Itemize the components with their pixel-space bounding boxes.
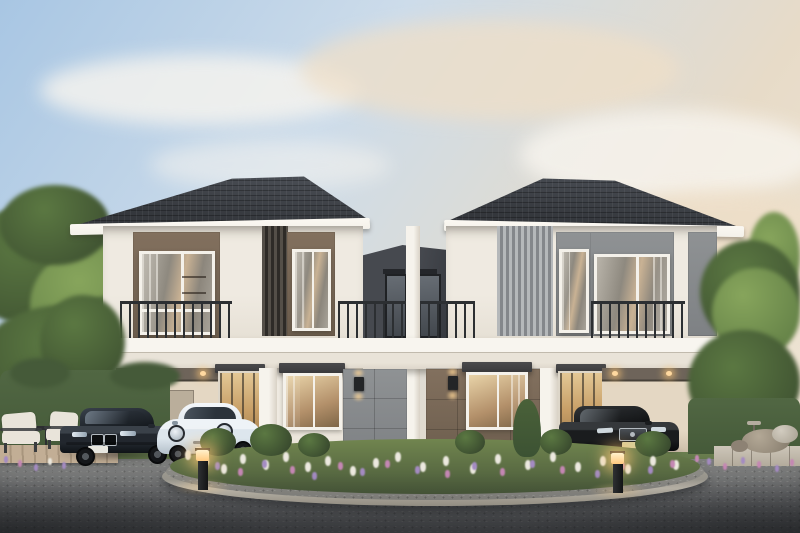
shrub bbox=[540, 429, 572, 455]
star-emblem bbox=[630, 432, 635, 437]
bollard-lamp-head bbox=[196, 450, 209, 461]
small-rock bbox=[731, 440, 748, 452]
shrub bbox=[635, 431, 671, 457]
left-upper-window-2 bbox=[292, 249, 331, 331]
side-mirror bbox=[148, 424, 155, 428]
bollard-lamp-head bbox=[611, 453, 624, 464]
left-wall-sconce bbox=[354, 377, 364, 391]
bollard-post bbox=[613, 464, 623, 493]
lounge-chair bbox=[0, 411, 44, 453]
left-window-awning bbox=[279, 363, 345, 373]
bollard-light bbox=[610, 451, 626, 493]
scene-root bbox=[0, 0, 800, 533]
right-window-awning bbox=[462, 362, 532, 372]
sconce-glow bbox=[446, 390, 459, 401]
carport-downlight bbox=[666, 371, 672, 376]
band-shadow-line bbox=[98, 352, 740, 353]
flower-cluster-deck-edge bbox=[4, 456, 8, 463]
interior-shelf bbox=[182, 292, 206, 294]
bollard-light bbox=[195, 448, 211, 490]
shrub bbox=[455, 430, 485, 454]
bollard-post bbox=[198, 461, 208, 490]
shrub bbox=[250, 424, 292, 456]
interior-shelf bbox=[182, 276, 206, 278]
pebble-pouf bbox=[772, 425, 798, 443]
carport-downlight bbox=[612, 371, 618, 376]
curtain bbox=[295, 252, 305, 328]
hedge-bump bbox=[10, 358, 70, 388]
carport-downlight bbox=[200, 371, 206, 376]
chair-leg bbox=[4, 443, 7, 453]
round-headlight bbox=[168, 425, 185, 442]
sconce-glow bbox=[352, 391, 365, 402]
right-tall-window bbox=[559, 249, 589, 333]
headlight bbox=[597, 428, 613, 434]
sedan-glass bbox=[85, 411, 147, 424]
right-wall-sconce bbox=[448, 376, 458, 390]
hedge-bump bbox=[110, 362, 180, 390]
sedan-glass bbox=[580, 409, 642, 422]
chair-leg bbox=[34, 442, 37, 452]
left-ground-window bbox=[283, 373, 342, 430]
flower-cluster-white bbox=[185, 450, 191, 460]
side-mirror bbox=[645, 421, 652, 425]
shrub bbox=[298, 433, 330, 457]
curtain bbox=[562, 252, 570, 330]
curtain bbox=[286, 376, 300, 427]
floor-band bbox=[98, 338, 740, 369]
window-mullion bbox=[312, 252, 314, 328]
wheel bbox=[76, 447, 95, 466]
window-mullion bbox=[497, 375, 499, 427]
window-mullion bbox=[313, 376, 315, 427]
chair-leg bbox=[48, 440, 51, 449]
panel-seam bbox=[343, 428, 407, 429]
headlight bbox=[120, 431, 136, 436]
flower-border-patio bbox=[695, 455, 699, 462]
chair-frame bbox=[0, 428, 42, 431]
left-dark-louvre-screen bbox=[262, 226, 288, 336]
right-grey-louvre-screen bbox=[497, 226, 553, 336]
headlight bbox=[72, 432, 87, 437]
